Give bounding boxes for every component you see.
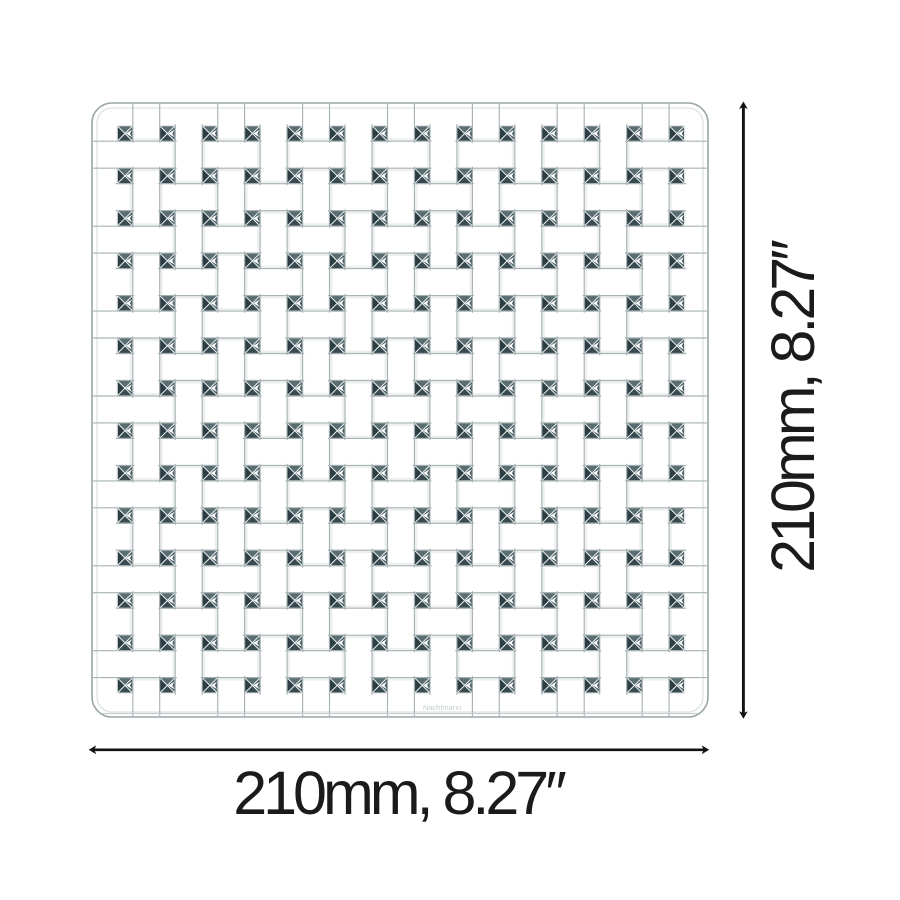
svg-text:Nachtmann: Nachtmann (423, 703, 461, 712)
svg-text:210mm, 8.27″: 210mm, 8.27″ (233, 759, 566, 827)
svg-text:210mm, 8.27″: 210mm, 8.27″ (759, 240, 827, 573)
